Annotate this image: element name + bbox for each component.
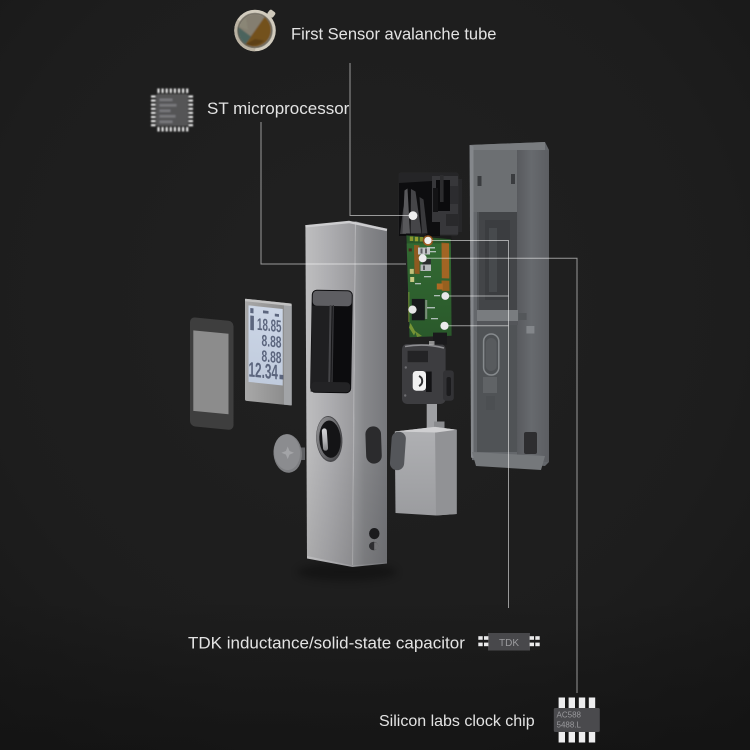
svg-text:ST microprocessor: ST microprocessor xyxy=(207,99,350,118)
svg-text:AC588: AC588 xyxy=(557,711,582,720)
svg-text:TDK: TDK xyxy=(499,638,519,649)
svg-text:12.34: 12.34 xyxy=(248,358,278,384)
svg-text:First Sensor avalanche tube: First Sensor avalanche tube xyxy=(291,26,496,44)
svg-text:Silicon labs clock chip: Silicon labs clock chip xyxy=(379,713,535,730)
svg-text:5488.L: 5488.L xyxy=(557,721,582,730)
svg-text:TDK inductance/solid-state cap: TDK inductance/solid-state capacitor xyxy=(188,634,465,653)
